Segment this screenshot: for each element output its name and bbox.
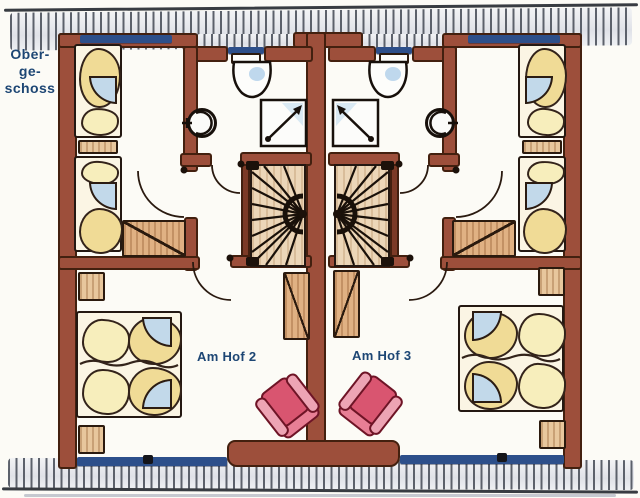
wardrobe-icon [122, 220, 186, 257]
blanket-fan [89, 182, 117, 210]
floor-title: Ober- ge- schoss [0, 46, 60, 97]
toilet-tank-left [231, 53, 261, 64]
wall-bottom-center [227, 440, 400, 467]
pillow [518, 363, 567, 410]
pillow [82, 319, 131, 364]
wardrobe-icon [452, 220, 516, 257]
floor-title-line2: ge- [0, 63, 60, 80]
nightstand-icon [538, 267, 565, 296]
nightstand-icon [522, 140, 562, 154]
ground-shadow [24, 494, 616, 497]
wardrobe-icon [283, 272, 310, 340]
spiral-staircase-icon [334, 164, 390, 267]
double-bed-icon [458, 305, 564, 412]
shower-icon [261, 100, 306, 146]
window-post-left [143, 455, 153, 464]
toilet-icon [233, 62, 270, 97]
unit-label-am-hof-3: Am Hof 3 [352, 348, 411, 363]
single-bed-icon [74, 44, 122, 138]
wall-divider-left [58, 256, 200, 270]
toilet-icon [369, 62, 406, 97]
duvet [523, 208, 567, 254]
nightstand-icon [539, 420, 566, 449]
spiral-staircase-icon [250, 164, 306, 267]
window-post-right [497, 453, 507, 462]
nightstand-icon [78, 272, 105, 301]
window-top-right [468, 35, 560, 43]
shower-icon [333, 100, 378, 146]
wall-bath-left-top-b [264, 46, 313, 62]
single-bed-icon [518, 156, 566, 252]
single-bed-icon [518, 44, 566, 138]
window-top-left [80, 35, 172, 43]
pillow [81, 107, 120, 136]
nightstand-icon [78, 140, 118, 154]
floor-title-line3: schoss [0, 80, 60, 97]
wall-bath-left-bottom [180, 153, 212, 167]
window-bottom-right [400, 455, 564, 464]
single-bed-icon [74, 156, 122, 252]
floor-plan-canvas: Ober- ge- schoss Am Hof 2 Am Hof 3 [0, 0, 640, 498]
floor-title-line1: Ober- [0, 46, 60, 63]
wall-stair-side-right [390, 164, 399, 268]
wall-bath-right-top-a [328, 46, 376, 62]
pillow [527, 107, 566, 136]
pillow [82, 369, 131, 416]
unit-label-am-hof-2: Am Hof 2 [197, 349, 256, 364]
toilet-tank-right [379, 53, 409, 64]
wall-bath-right-bottom [428, 153, 460, 167]
armchair-icon [332, 366, 407, 442]
wall-stair-side-left [241, 164, 250, 268]
pillow [518, 313, 567, 358]
duvet [79, 208, 123, 254]
wardrobe-icon [333, 270, 360, 338]
blanket-fan [525, 182, 553, 210]
nightstand-icon [78, 425, 105, 454]
double-bed-icon [76, 311, 182, 418]
